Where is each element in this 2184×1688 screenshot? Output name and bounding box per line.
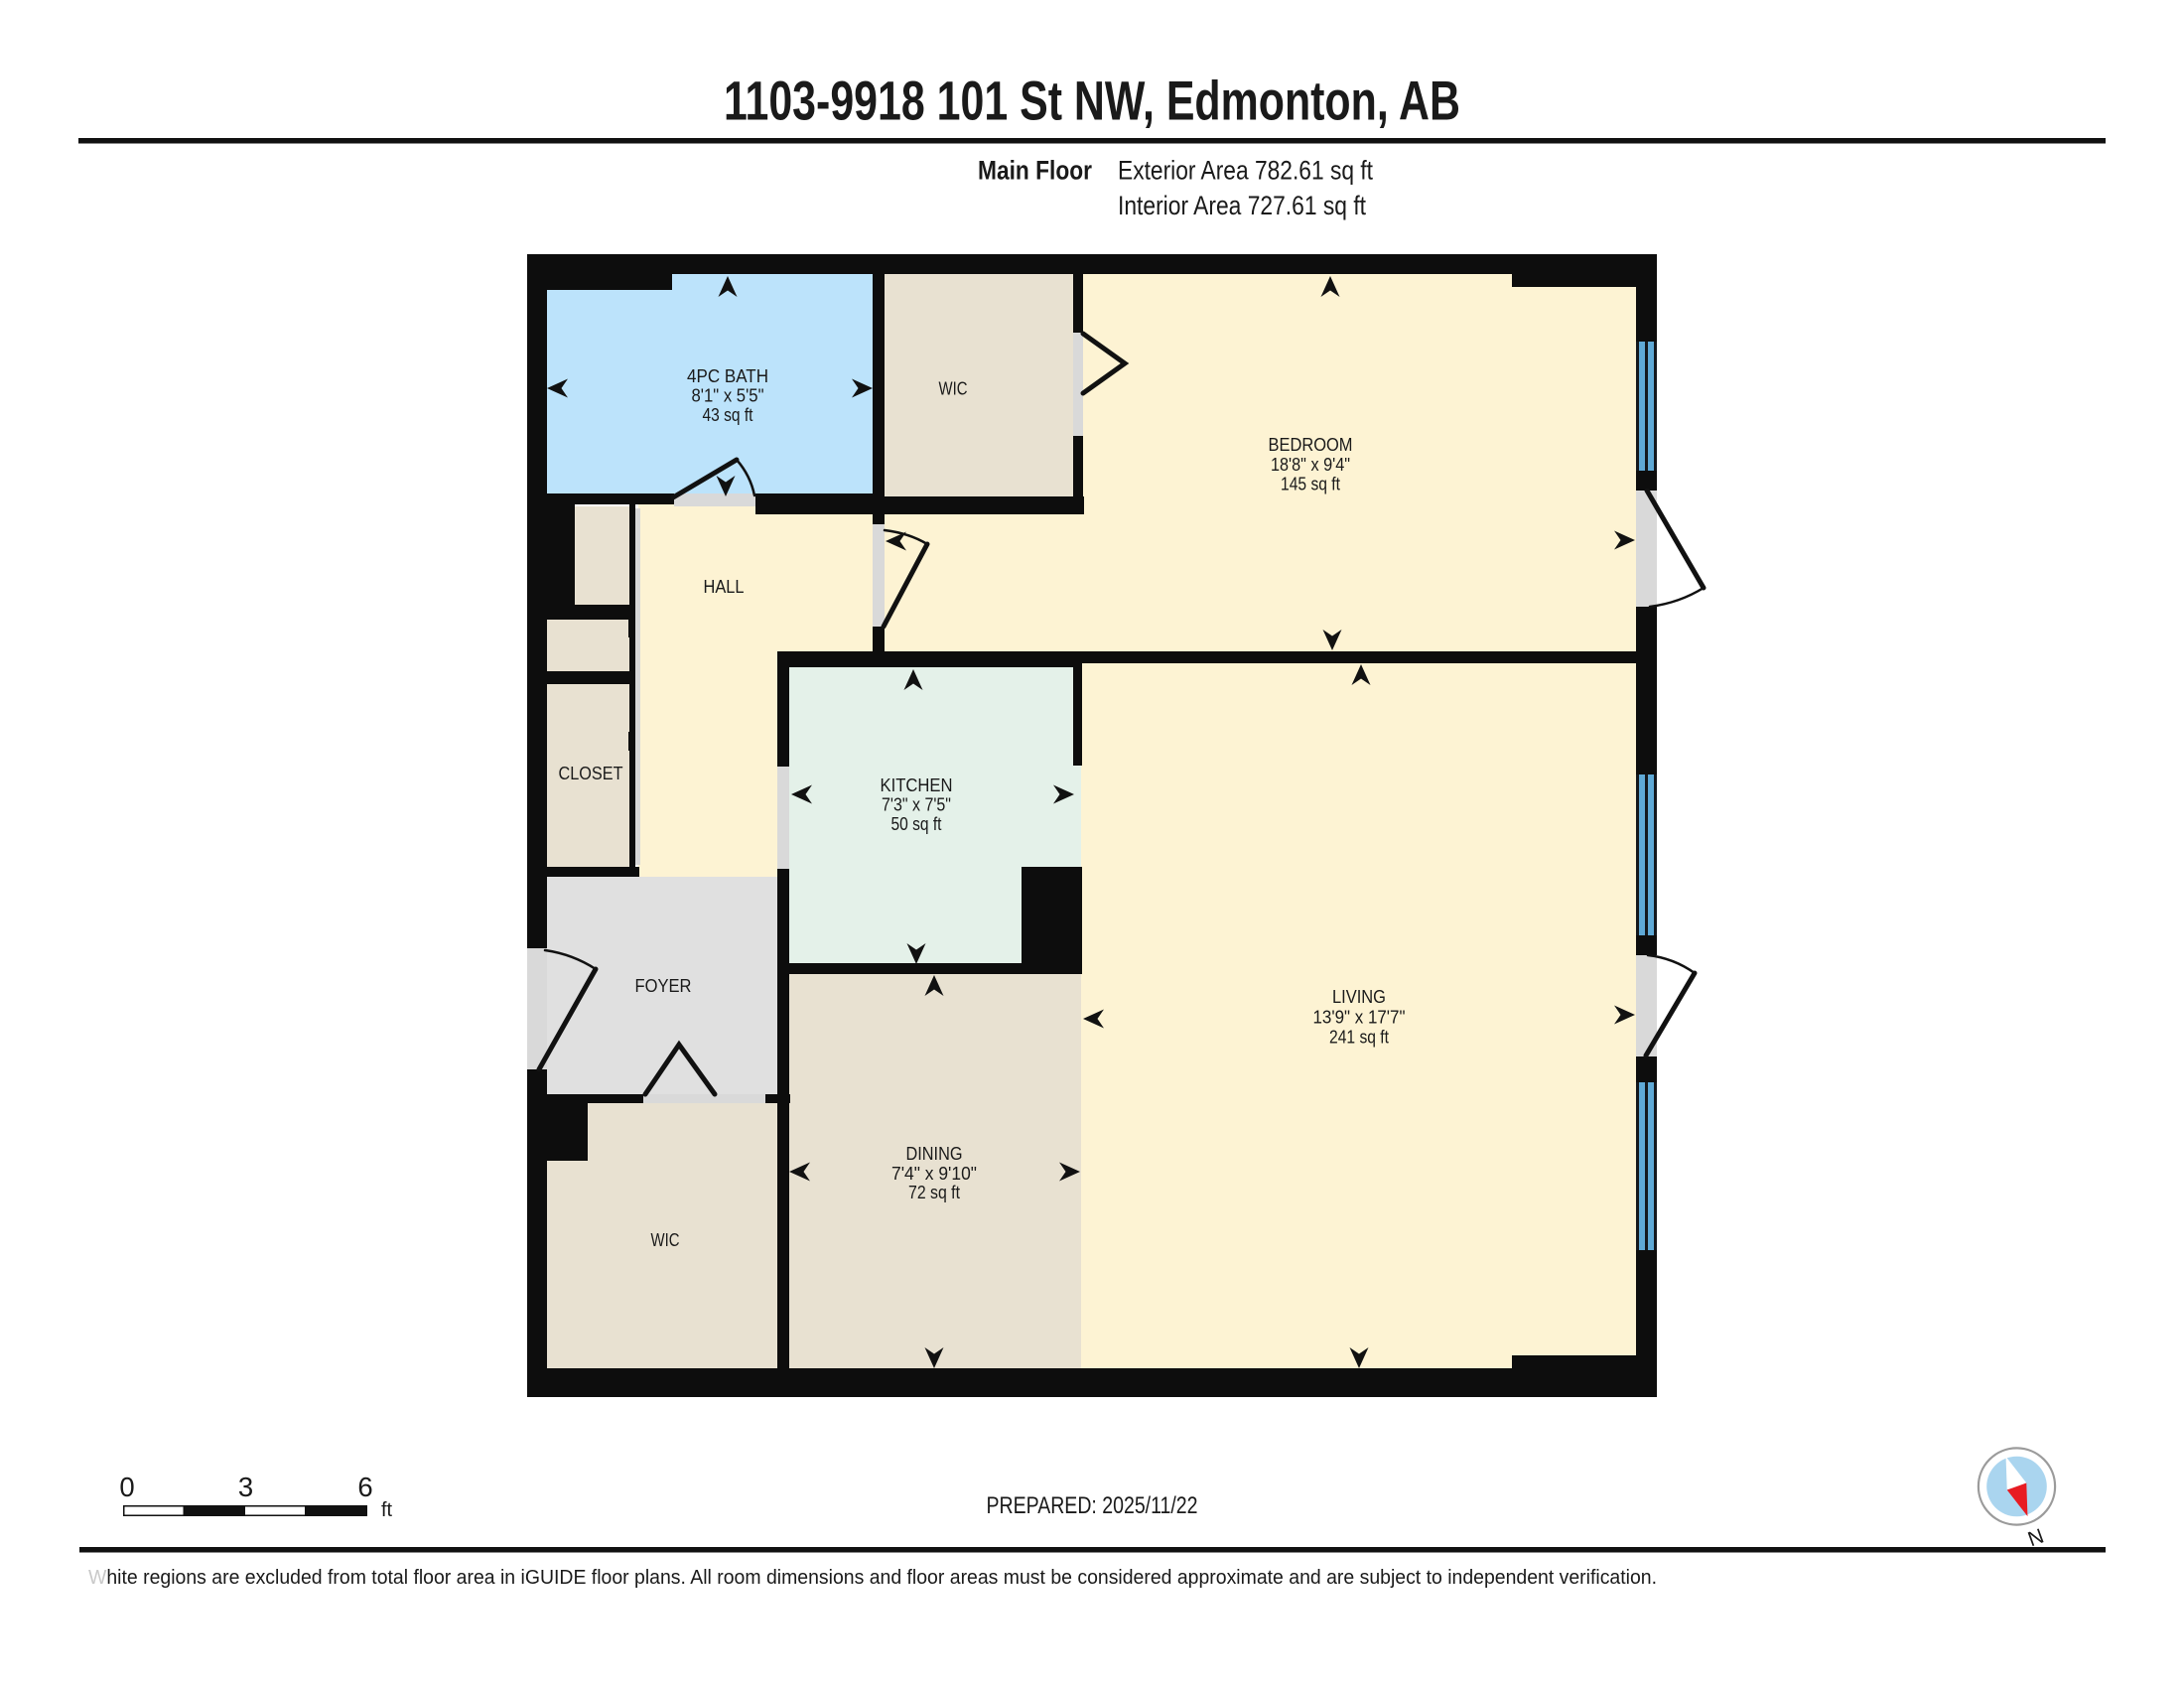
svg-text:ft: ft bbox=[381, 1499, 393, 1521]
svg-text:4PC BATH: 4PC BATH bbox=[687, 365, 768, 386]
svg-text:7'4" x 9'10": 7'4" x 9'10" bbox=[891, 1163, 977, 1184]
svg-text:241 sq ft: 241 sq ft bbox=[1329, 1027, 1389, 1048]
svg-text:PREPARED: 2025/11/22: PREPARED: 2025/11/22 bbox=[987, 1492, 1198, 1519]
svg-text:13'9" x 17'7": 13'9" x 17'7" bbox=[1313, 1007, 1406, 1028]
svg-text:DINING: DINING bbox=[906, 1143, 963, 1164]
svg-text:Interior Area 727.61 sq ft: Interior Area 727.61 sq ft bbox=[1118, 190, 1366, 220]
svg-text:Exterior Area 782.61 sq ft: Exterior Area 782.61 sq ft bbox=[1118, 155, 1373, 186]
svg-text:KITCHEN: KITCHEN bbox=[881, 774, 953, 795]
svg-text:LIVING: LIVING bbox=[1332, 986, 1386, 1007]
svg-text:FOYER: FOYER bbox=[635, 975, 692, 996]
svg-text:6: 6 bbox=[357, 1472, 372, 1502]
svg-text:HALL: HALL bbox=[704, 576, 745, 597]
svg-text:72 sq ft: 72 sq ft bbox=[908, 1182, 960, 1202]
svg-text:50 sq ft: 50 sq ft bbox=[891, 813, 942, 834]
svg-text:1103-9918 101 St NW, Edmonton,: 1103-9918 101 St NW, Edmonton, AB bbox=[724, 70, 1460, 132]
svg-text:7'3" x 7'5": 7'3" x 7'5" bbox=[882, 794, 951, 815]
svg-text:BEDROOM: BEDROOM bbox=[1269, 434, 1353, 455]
svg-text:18'8" x 9'4": 18'8" x 9'4" bbox=[1271, 454, 1350, 475]
svg-text:WIC: WIC bbox=[651, 1229, 680, 1250]
svg-text:8'1" x 5'5": 8'1" x 5'5" bbox=[692, 385, 764, 406]
svg-text:Main Floor: Main Floor bbox=[978, 155, 1092, 186]
svg-text:CLOSET: CLOSET bbox=[559, 763, 623, 783]
svg-text:WIC: WIC bbox=[939, 378, 968, 399]
svg-text:3: 3 bbox=[238, 1472, 253, 1502]
svg-text:43 sq ft: 43 sq ft bbox=[703, 404, 753, 425]
svg-text:0: 0 bbox=[119, 1472, 134, 1502]
svg-text:145 sq ft: 145 sq ft bbox=[1281, 474, 1340, 494]
svg-text:White regions are excluded fro: White regions are excluded from total fl… bbox=[88, 1567, 1657, 1589]
